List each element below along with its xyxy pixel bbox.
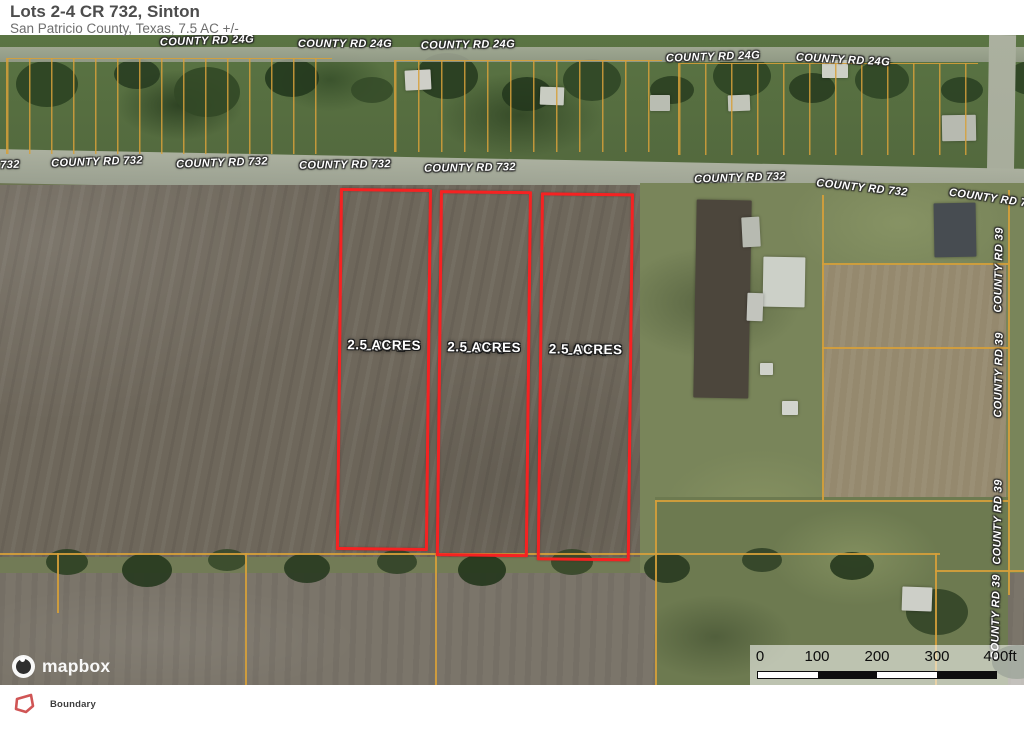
mapbox-attribution[interactable]: mapbox <box>12 655 110 678</box>
parcel-strip-ne <box>678 63 978 155</box>
lot-2-acreage: 2.5 ACRES <box>347 337 421 353</box>
road-label-cr39: COUNTY RD 39 <box>992 332 1005 417</box>
parcel-line <box>655 500 1008 502</box>
trailer <box>741 217 761 248</box>
parcel-line <box>1008 190 1010 595</box>
mapbox-logo-icon <box>12 655 35 678</box>
scale-bar-segments <box>757 671 997 679</box>
scale-tick-200: 200 <box>864 648 889 665</box>
parcel-line <box>822 347 1008 349</box>
parcel-line <box>655 500 657 685</box>
road-label-cr732: COUNTY RD 732 <box>299 158 391 172</box>
shed <box>760 363 773 375</box>
satellite-map[interactable]: LOT 2 2.5 ACRES LOT 3 2.5 ACRES LOT 4 2.… <box>0 35 1024 685</box>
scale-tick-400ft: 400ft <box>983 648 1016 665</box>
scale-tick-0: 0 <box>756 648 764 665</box>
lot-3-acreage: 2.5 ACRES <box>447 339 521 355</box>
map-scale-bar: 0 100 200 300 400ft <box>750 645 1024 685</box>
road-label-cr732-partial: 732 <box>0 159 20 172</box>
page-title: Lots 2-4 CR 732, Sinton <box>10 2 239 21</box>
parcel-strip-n <box>394 60 662 152</box>
subject-lots-group: LOT 2 2.5 ACRES LOT 3 2.5 ACRES LOT 4 2.… <box>334 187 640 566</box>
lot-2-boundary: LOT 2 2.5 ACRES <box>336 188 432 551</box>
road-label-cr39: COUNTY RD 39 <box>991 479 1004 564</box>
scale-tick-300: 300 <box>924 648 949 665</box>
parcel-line <box>935 570 1024 572</box>
listing-map-page: Lots 2-4 CR 732, Sinton San Patricio Cou… <box>0 0 1024 735</box>
house-dark-roof <box>934 203 977 258</box>
parcel-line <box>435 553 437 685</box>
legend-boundary: Boundary <box>12 692 96 716</box>
road-label-cr24g: COUNTY RD 24G <box>298 38 392 50</box>
header: Lots 2-4 CR 732, Sinton San Patricio Cou… <box>10 2 239 37</box>
mapbox-wordmark: mapbox <box>42 656 110 677</box>
parcel-line <box>57 553 59 613</box>
barn-building <box>763 257 806 308</box>
page-subtitle: San Patricio County, Texas, 7.5 AC +/- <box>10 21 239 37</box>
tan-field-east <box>824 265 1006 497</box>
road-label-cr732: COUNTY RD 732 <box>424 161 516 175</box>
parcel-line <box>245 553 247 685</box>
parcel-strip-nw <box>6 58 332 154</box>
road-label-cr39: COUNTY RD 39 <box>992 227 1005 312</box>
parcel-line <box>822 263 1008 265</box>
trailer-2 <box>747 293 764 322</box>
lot-4-acreage: 2.5 ACRES <box>549 341 623 357</box>
house-south <box>902 586 933 611</box>
boundary-polygon-icon <box>12 692 36 716</box>
legend-boundary-label: Boundary <box>50 699 96 710</box>
road-label-cr24g: COUNTY RD 24G <box>421 38 515 52</box>
lot-4-boundary: LOT 4 2.5 ACRES <box>537 192 634 561</box>
shed-2 <box>782 401 798 415</box>
scale-tick-100: 100 <box>804 648 829 665</box>
lot-3-boundary: LOT 3 2.5 ACRES <box>436 190 532 557</box>
